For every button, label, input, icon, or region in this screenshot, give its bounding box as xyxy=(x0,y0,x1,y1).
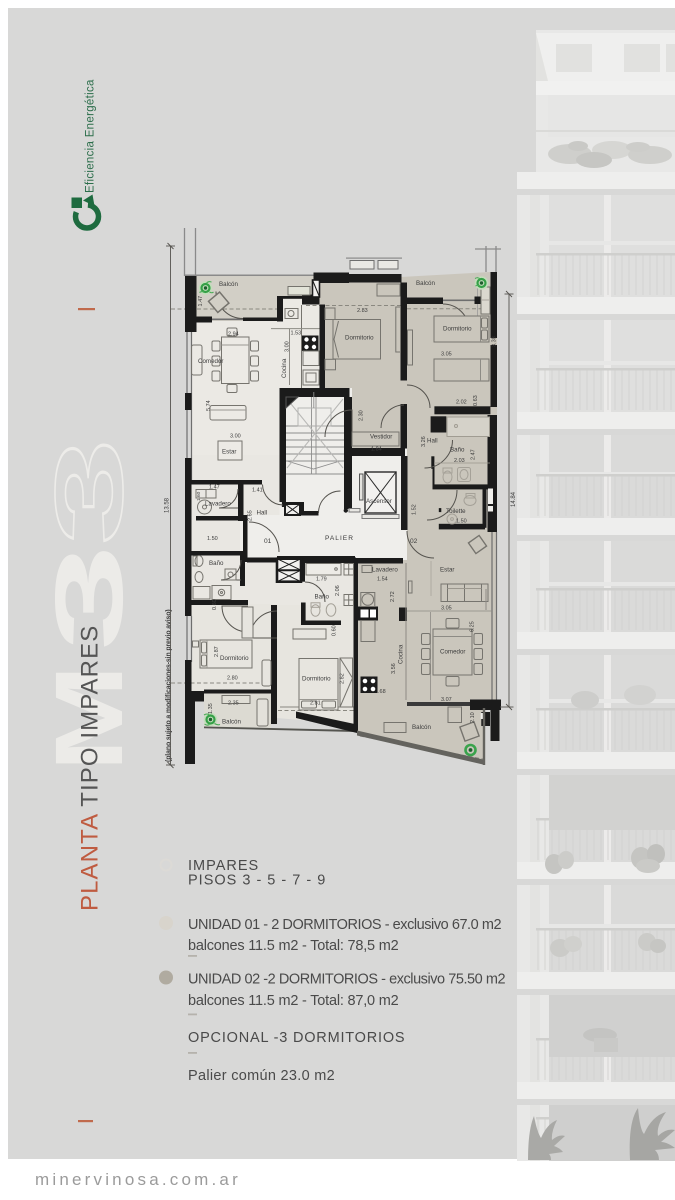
svg-text:0.60: 0.60 xyxy=(212,599,218,610)
svg-text:OPCIONAL -3 DORMITORIOS: OPCIONAL -3 DORMITORIOS xyxy=(188,1030,405,1046)
svg-text:2.82: 2.82 xyxy=(340,673,346,684)
svg-text:1.52: 1.52 xyxy=(412,504,418,515)
svg-text:2.94: 2.94 xyxy=(228,332,239,338)
svg-text:2.35: 2.35 xyxy=(228,701,239,707)
svg-text:3.00: 3.00 xyxy=(230,434,241,440)
svg-text:3.38: 3.38 xyxy=(492,336,498,347)
svg-text:Estar: Estar xyxy=(440,567,454,574)
svg-text:balcones 11.5 m2 - Total: 78,5: balcones 11.5 m2 - Total: 78,5 m2 xyxy=(188,938,399,954)
svg-text:PLANTA TIPO IMPARES: PLANTA TIPO IMPARES xyxy=(77,625,104,911)
svg-text:2.65: 2.65 xyxy=(248,510,254,521)
svg-text:2.83: 2.83 xyxy=(357,308,368,314)
svg-text:Dormitorio: Dormitorio xyxy=(443,326,472,333)
svg-text:Vestidor: Vestidor xyxy=(370,434,392,441)
svg-text:1.50: 1.50 xyxy=(207,536,218,542)
svg-text:13.58: 13.58 xyxy=(165,497,171,513)
svg-text:Balcón: Balcón xyxy=(219,281,238,288)
svg-text:Dormitorio: Dormitorio xyxy=(220,655,249,662)
svg-text:Balcón: Balcón xyxy=(412,724,431,731)
svg-text:Balcón: Balcón xyxy=(222,719,241,726)
svg-text:5.74: 5.74 xyxy=(206,400,212,411)
svg-text:Dormitorio: Dormitorio xyxy=(302,676,331,683)
svg-text:3.05: 3.05 xyxy=(441,352,452,358)
svg-text:1.47: 1.47 xyxy=(198,296,204,307)
svg-text:2.02: 2.02 xyxy=(456,400,467,406)
svg-text:Cocina: Cocina xyxy=(281,358,288,378)
svg-text:1.53: 1.53 xyxy=(291,331,302,337)
svg-text:02: 02 xyxy=(410,538,418,545)
svg-text:Eficiencia Energética: Eficiencia Energética xyxy=(85,79,97,193)
svg-text:1.41: 1.41 xyxy=(252,488,263,494)
svg-text:2.10: 2.10 xyxy=(470,712,476,723)
svg-text:1.50: 1.50 xyxy=(456,519,467,525)
svg-text:.68: .68 xyxy=(378,689,386,695)
svg-text:2.72: 2.72 xyxy=(390,591,396,602)
svg-text:PALIER: PALIER xyxy=(325,535,354,542)
svg-text:Lavadero: Lavadero xyxy=(205,501,231,508)
svg-text:1.60: 1.60 xyxy=(196,491,202,501)
svg-text:Hall: Hall xyxy=(427,438,438,445)
svg-text:2.30: 2.30 xyxy=(359,410,365,421)
svg-text:1.47: 1.47 xyxy=(209,485,220,491)
svg-text:1.54: 1.54 xyxy=(377,577,388,583)
svg-text:Estar: Estar xyxy=(222,449,236,456)
svg-text:Baño: Baño xyxy=(315,594,330,601)
svg-text:Hall: Hall xyxy=(257,510,268,517)
svg-text:3.56: 3.56 xyxy=(391,663,397,674)
svg-text:14.84: 14.84 xyxy=(511,491,517,507)
svg-text:Cocina: Cocina xyxy=(398,644,405,664)
svg-text:Balcón: Balcón xyxy=(416,280,435,287)
svg-text:Baño: Baño xyxy=(209,560,224,567)
svg-text:Palier común 23.0 m2: Palier común 23.0 m2 xyxy=(188,1068,335,1084)
svg-text:6.25: 6.25 xyxy=(470,621,476,632)
svg-text:1.84: 1.84 xyxy=(371,447,382,453)
svg-text:3.05: 3.05 xyxy=(441,606,452,612)
svg-text:Comedor: Comedor xyxy=(440,649,465,656)
svg-text:0.63: 0.63 xyxy=(473,395,479,406)
svg-text:2.80: 2.80 xyxy=(227,676,238,682)
svg-text:2.47: 2.47 xyxy=(471,449,477,460)
svg-text:Baño: Baño xyxy=(450,447,465,454)
svg-text:3: 3 xyxy=(36,438,143,545)
svg-text:balcones 11.5 m2 - Total: 87,0: balcones 11.5 m2 - Total: 87,0 m2 xyxy=(188,993,399,1009)
svg-text:(plano sujeto a modificaciones: (plano sujeto a modificaciones-sin previ… xyxy=(166,609,173,762)
svg-text:Comedor: Comedor xyxy=(198,358,223,365)
svg-text:2.87: 2.87 xyxy=(214,646,220,657)
svg-text:Toilette: Toilette xyxy=(446,508,466,515)
svg-text:1.79: 1.79 xyxy=(316,577,327,583)
svg-text:2.81: 2.81 xyxy=(310,701,321,707)
svg-text:Ascensor: Ascensor xyxy=(366,498,392,505)
svg-text:0.60: 0.60 xyxy=(332,625,338,636)
svg-text:minervinosa.com.ar: minervinosa.com.ar xyxy=(35,1170,241,1189)
svg-text:01: 01 xyxy=(264,538,272,545)
svg-text:PISOS 3 - 5 - 7 - 9: PISOS 3 - 5 - 7 - 9 xyxy=(188,873,326,889)
svg-text:3.00: 3.00 xyxy=(285,341,291,352)
svg-text:3.07: 3.07 xyxy=(441,697,452,703)
svg-text:Lavadero: Lavadero xyxy=(372,567,398,574)
svg-text:Dormitorio: Dormitorio xyxy=(345,335,374,342)
svg-text:1.35: 1.35 xyxy=(208,703,214,714)
svg-text:UNIDAD 01 - 2 DORMITORIOS -: UNIDAD 01 - 2 DORMITORIOS - exclusivo 67… xyxy=(188,917,501,933)
svg-text:2.06: 2.06 xyxy=(335,585,341,596)
svg-text:UNIDAD 02 -2 DORMITORIOS - exc: UNIDAD 02 -2 DORMITORIOS - exclusivo 75.… xyxy=(188,972,505,988)
svg-text:2.03: 2.03 xyxy=(454,458,465,464)
